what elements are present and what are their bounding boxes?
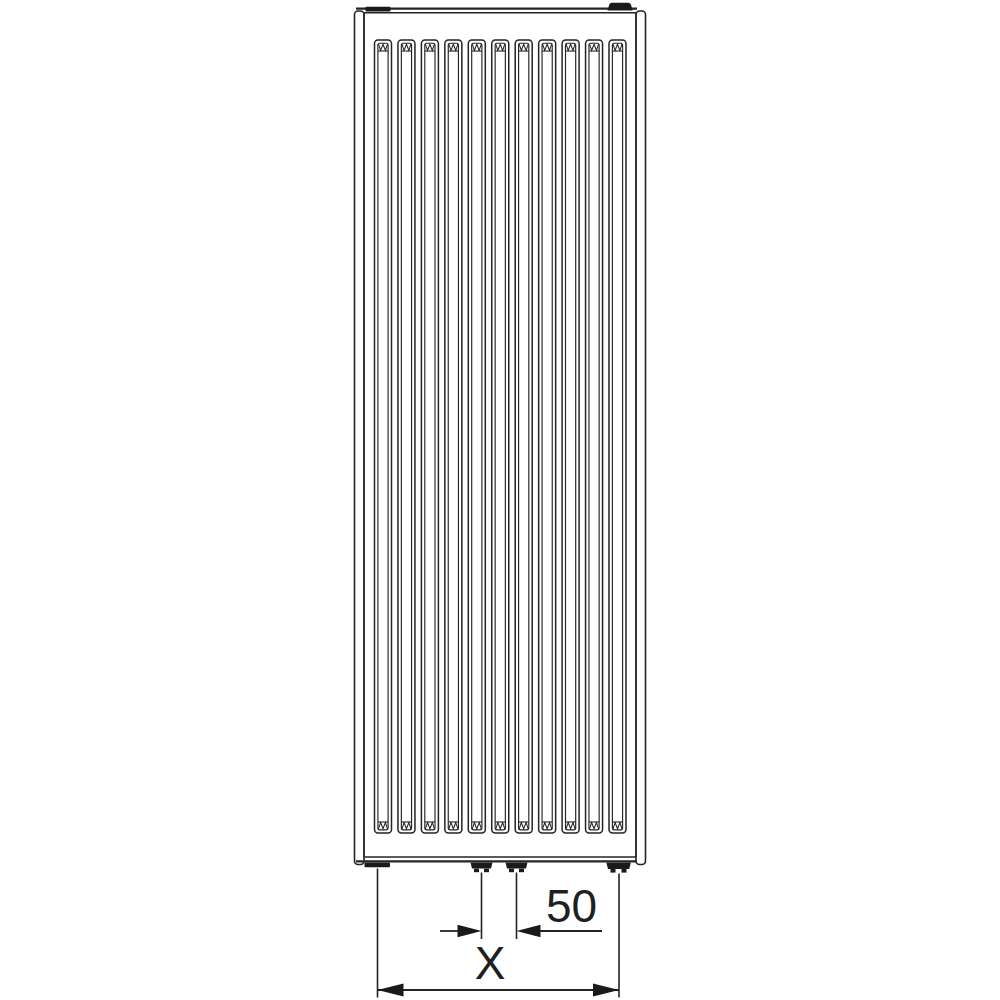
dimension-overall-width: X xyxy=(378,937,620,997)
radiator-technical-drawing: 50 X xyxy=(0,0,1000,1000)
radiator-slot xyxy=(468,40,485,833)
radiator-slot xyxy=(421,40,438,833)
left-side-panel xyxy=(355,11,365,865)
bottom-center-connection-left-icon xyxy=(471,863,493,873)
arrowhead-left-icon xyxy=(517,925,541,938)
dimension-x-label: X xyxy=(475,937,506,989)
radiator-slot xyxy=(492,40,509,833)
bottom-left-stub-icon xyxy=(365,863,391,868)
right-side-panel xyxy=(636,11,646,865)
radiator-slot xyxy=(445,40,462,833)
dimensioning: 50 X xyxy=(378,869,620,998)
radiator-slot xyxy=(375,40,392,833)
dimension-connection-spacing: 50 xyxy=(440,880,602,938)
arrowhead-left-icon xyxy=(378,984,404,997)
radiator-slots xyxy=(375,40,627,833)
radiator-body xyxy=(355,3,646,873)
bottom-right-connection-icon xyxy=(606,863,631,873)
radiator-slot xyxy=(562,40,579,833)
arrowhead-right-icon xyxy=(593,984,619,997)
bottom-center-connection-right-icon xyxy=(506,863,528,873)
top-left-plug-icon xyxy=(366,7,391,12)
radiator-slot xyxy=(398,40,415,833)
dimension-50-label: 50 xyxy=(546,880,597,932)
radiator-slot xyxy=(586,40,603,833)
arrowhead-right-icon xyxy=(458,925,482,938)
drawing-canvas: 50 X xyxy=(0,0,1000,1000)
top-right-vent-cap-icon xyxy=(608,3,633,11)
radiator-slot xyxy=(539,40,556,833)
radiator-slot xyxy=(609,40,626,833)
radiator-slot xyxy=(515,40,532,833)
